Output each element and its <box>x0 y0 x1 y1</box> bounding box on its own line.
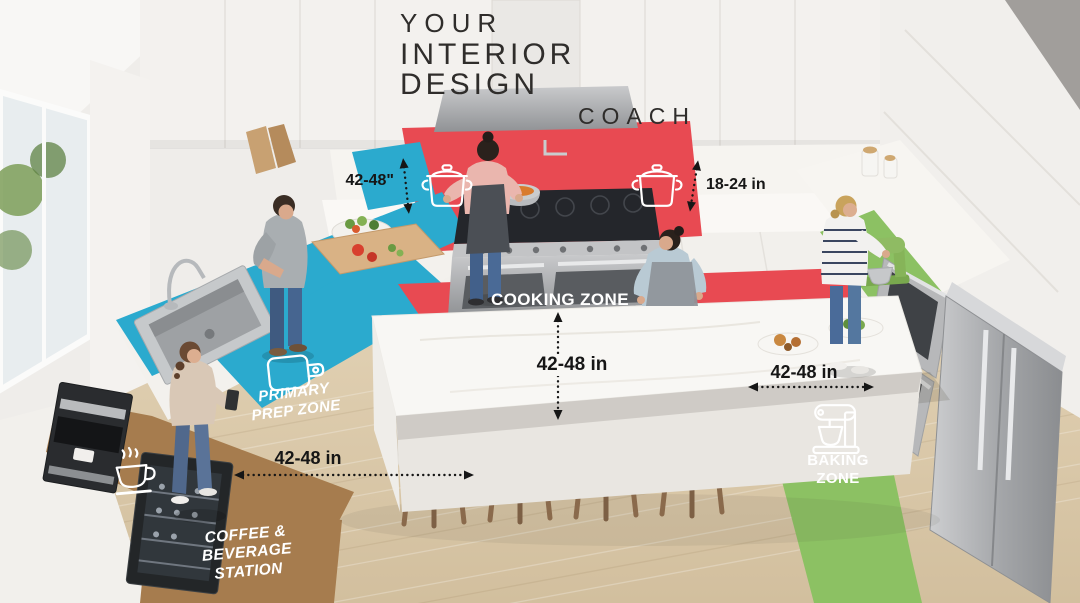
title-line-3: COACH <box>400 105 696 128</box>
stand-mixer-icon <box>808 396 864 456</box>
page-title: YOUR INTERIOR DESIGN COACH <box>400 10 696 128</box>
pot-icon <box>420 162 474 210</box>
vertical-dimension-arrow-up <box>550 312 566 354</box>
kitchen-zones-infographic: YOUR INTERIOR DESIGN COACH 42-48" 18-24 … <box>0 0 1080 603</box>
window <box>0 92 90 390</box>
coffee-zone-label: COFFEE & BEVERAGE STATION <box>188 521 306 586</box>
horizontal-dimension-arrow <box>748 380 874 394</box>
dimension-island-walkway: 42-48 in <box>520 354 624 376</box>
dimension-hood-clearance: 18-24 in <box>706 176 766 194</box>
dimension-backsplash-height: 42-48" <box>336 172 394 190</box>
title-line-2: INTERIOR DESIGN <box>400 40 696 100</box>
vertical-dimension-arrow-down <box>550 376 566 420</box>
cooking-zone-label: COOKING ZONE <box>478 290 642 310</box>
coffee-cup-icon <box>102 444 162 501</box>
dimension-coffee-walkway: 42-48 in <box>266 448 350 469</box>
horizontal-dimension-arrow <box>234 468 474 482</box>
baking-zone-label: BAKING ZONE <box>797 452 879 487</box>
pot-icon <box>630 162 684 210</box>
dinner-plate <box>758 333 818 355</box>
title-line-1: YOUR <box>400 10 696 36</box>
